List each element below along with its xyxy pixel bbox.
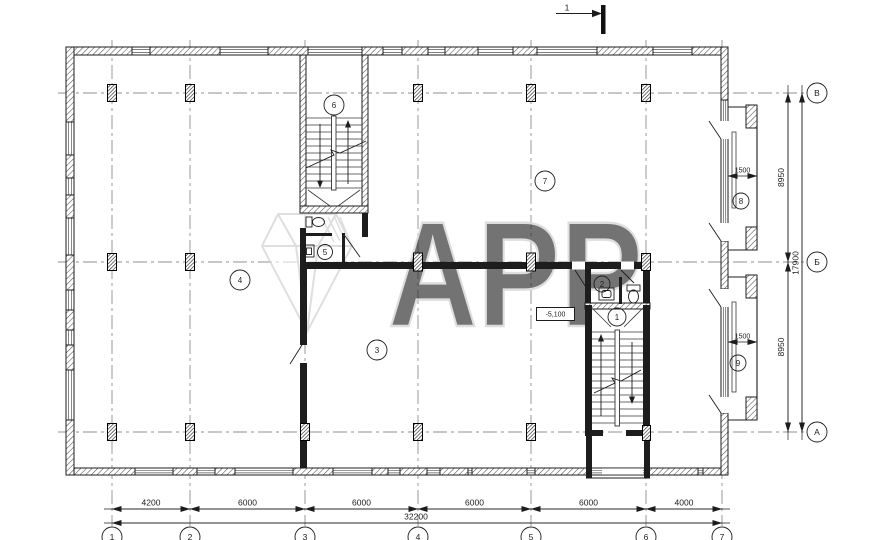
dim-bottom-2: 6000 — [352, 498, 371, 508]
balcony-upper-post-top — [746, 105, 757, 128]
stair1-stringer — [615, 330, 620, 426]
section-marker-arrow — [592, 10, 602, 17]
axis-bubble-V: В — [814, 88, 820, 98]
axis-bubble-4: 4 — [416, 532, 421, 540]
room-label-6: 6 — [332, 101, 337, 110]
column — [186, 254, 195, 271]
column — [108, 85, 117, 102]
axis-bubble-texts-bottom: 1 2 3 4 5 6 7 — [110, 532, 725, 540]
dimensions-bottom: 4200 6000 6000 6000 6000 4000 32200 — [104, 498, 730, 524]
porch-wall-left — [586, 436, 592, 478]
column — [108, 254, 117, 271]
dim-bottom-5: 4000 — [675, 498, 694, 508]
axis-bubbles-right: В Б А — [807, 83, 827, 442]
porch-wall-right — [644, 436, 650, 478]
column — [414, 253, 423, 271]
stair6-landing-wall — [300, 206, 368, 213]
column — [414, 85, 423, 102]
wc2-wall-right — [643, 268, 650, 305]
balcony-upper: 1500 — [728, 105, 757, 250]
room-label-5: 5 — [323, 248, 328, 257]
room-label-3: 3 — [375, 346, 380, 355]
wc5-wall-right — [362, 213, 368, 237]
room-label-1: 1 — [615, 313, 620, 322]
wc5-partition-v — [342, 233, 345, 262]
balcony-upper-post-bottom — [746, 227, 757, 250]
dim-bottom-total: 32200 — [404, 512, 428, 522]
axis-bubble-texts-right: В Б А — [814, 88, 820, 437]
section-cut-bar — [601, 5, 606, 34]
porch-door-gap — [602, 468, 643, 474]
balcony-door-leaves — [709, 121, 721, 413]
column — [527, 424, 536, 441]
stair6-stringer — [332, 116, 337, 190]
column — [414, 424, 423, 441]
dim-right-0: 8950 — [776, 168, 786, 187]
stair6-landing-line-left — [308, 190, 330, 206]
axis-bubble-6: 6 — [644, 532, 649, 540]
balcony-lower: 1500 — [728, 275, 757, 420]
room-label-2: 2 — [600, 280, 605, 289]
column — [527, 253, 536, 271]
balcony-upper-dim: 1500 — [735, 168, 751, 175]
wc2-partition — [619, 277, 622, 304]
dim-bottom-0: 4200 — [142, 498, 161, 508]
dim-bottom-4: 6000 — [579, 498, 598, 508]
stair6-wall-left — [300, 55, 306, 206]
section-marker: 1 — [556, 3, 606, 35]
floor-plan-page: APP — [0, 0, 870, 540]
partition-wall-vertical-lower — [300, 363, 307, 468]
dim-bottom-1: 6000 — [238, 498, 257, 508]
stair6-wall-right — [362, 55, 368, 206]
column — [642, 85, 651, 102]
stair6-down-arrowhead — [317, 181, 323, 189]
column — [527, 85, 536, 102]
room-label-7: 7 — [543, 177, 548, 186]
partition-wall-vertical-upper — [300, 269, 307, 345]
dim-right-1: 8950 — [776, 337, 786, 356]
dim-bottom-3: 6000 — [465, 498, 484, 508]
stairwell-upper — [300, 55, 368, 213]
elevation-value: -5,100 — [546, 312, 566, 319]
axis-bubble-7: 7 — [720, 532, 725, 540]
stair1-stub-right — [626, 430, 643, 436]
axis-bubble-3: 3 — [303, 532, 308, 540]
balcony-lower-rail — [732, 302, 736, 392]
wc5-partition-h — [300, 233, 332, 236]
stair6-up-arrowhead — [345, 120, 351, 128]
stair1-wall-left — [585, 305, 592, 436]
axis-bubble-1: 1 — [110, 532, 115, 540]
balcony-lower-post-bottom — [746, 397, 757, 420]
stair6-landing-line-right — [338, 190, 360, 206]
section-marker-label: 1 — [565, 3, 570, 13]
balcony-lower-post-top — [746, 275, 757, 298]
column — [186, 85, 195, 102]
stair1-stub-left — [592, 430, 603, 436]
mid-wall-door-gap-right — [621, 262, 634, 270]
stair1-down-arrowhead — [629, 397, 635, 405]
axis-bubble-B: Б — [814, 257, 820, 267]
mid-wall-door-gap-left — [572, 262, 585, 270]
column — [301, 424, 310, 441]
column — [643, 426, 651, 441]
column — [186, 424, 195, 441]
column — [108, 424, 117, 441]
axis-bubble-2: 2 — [188, 532, 193, 540]
wc2-wall-left — [585, 268, 591, 305]
mid-wall — [300, 262, 650, 269]
dim-right-total: 17900 — [791, 251, 801, 275]
axis-bubble-A: А — [814, 427, 820, 437]
room4-door-leaf — [290, 345, 302, 364]
room-label-4: 4 — [238, 276, 243, 285]
room-label-8: 8 — [739, 197, 744, 206]
room-label-9: 9 — [736, 359, 741, 368]
balcony-lower-dim: 1500 — [735, 334, 751, 341]
dimensions-right: 8950 8950 17900 — [776, 85, 802, 440]
watermark-text: APP — [388, 190, 643, 358]
axis-bubble-5: 5 — [529, 532, 534, 540]
stair1-wall-right — [643, 305, 650, 436]
column — [642, 254, 651, 271]
floor-plan-canvas: APP — [0, 0, 870, 540]
axis-bubbles-bottom: 1 2 3 4 5 6 7 — [102, 527, 732, 540]
elevation-marker: -5,100 — [537, 308, 575, 321]
